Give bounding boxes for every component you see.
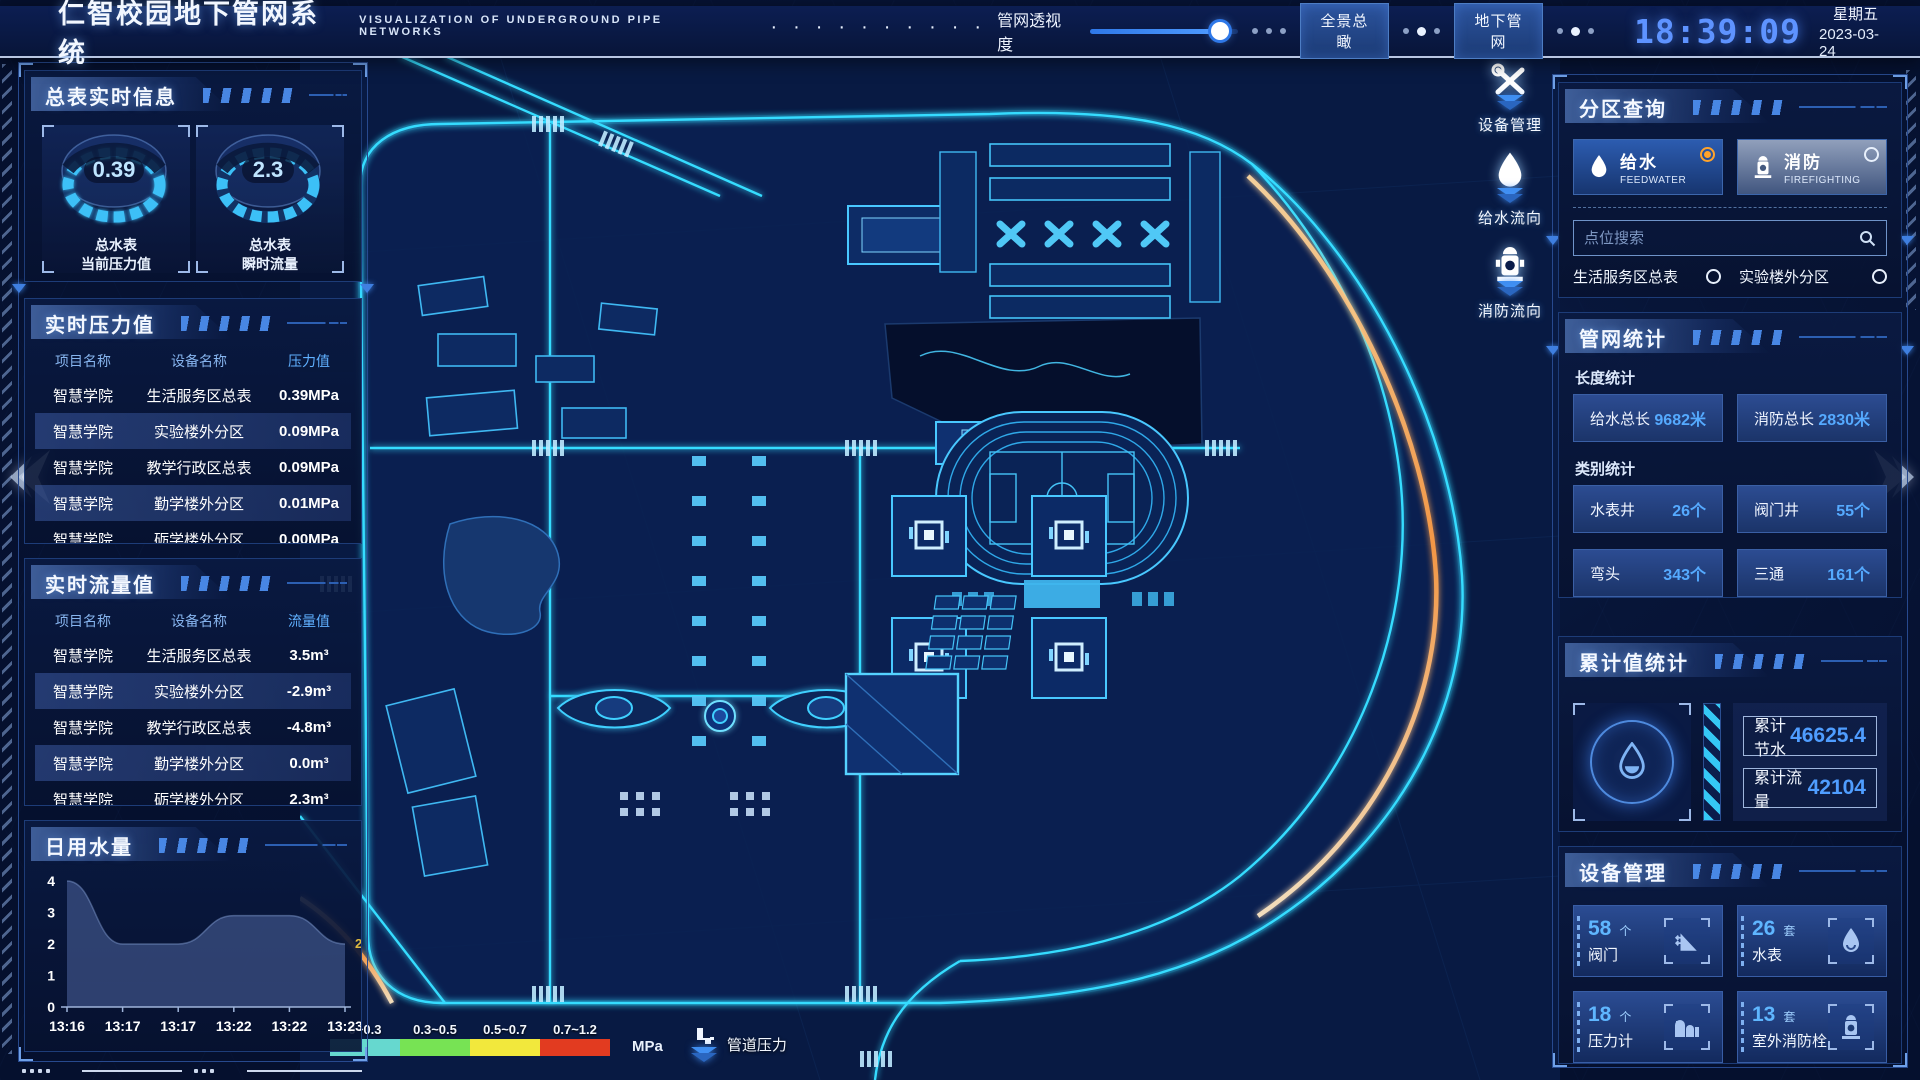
tool-fire-flow[interactable]: 消防流向 [1478,244,1542,321]
top-bar: 仁智校园地下管网系统 VISUALIZATION OF UNDERGROUND … [0,6,1920,58]
hazard-stripe-divider [1703,703,1721,821]
panel-daily-water: 日用水量 0123413:1613:1713:1713:2213:2213:23… [24,820,362,1052]
radio-selected-icon[interactable] [1700,147,1715,162]
search-icon[interactable] [1859,230,1876,247]
footer-decoration [22,1068,362,1074]
table-row[interactable]: 智慧学院砺学楼外分区0.00MPa [35,521,351,544]
pipe-opacity-label: 管网透视度 [997,7,1076,55]
gauge-value: 2.3 [253,157,284,182]
svg-text:13:16: 13:16 [49,1018,85,1034]
list-item[interactable]: 生活服务区总表 [1573,260,1721,293]
tool-water-flow[interactable]: 给水流向 [1478,151,1542,228]
tab-firefighting[interactable]: 消防FIREFIGHTING [1737,139,1887,195]
stat-feedwater-length: 给水总长9682米 [1573,394,1723,442]
radio-icon[interactable] [1872,269,1887,284]
gauge-value: 0.39 [93,157,136,182]
tool-device-management[interactable]: 设备管理 [1478,62,1542,135]
slashes-decoration [203,88,299,103]
panel-partition-query: 分区查询 给水FEEDWATER 消防FIREFIGHTING [1558,82,1902,298]
legend-range: 0.7~1.2 [540,1022,610,1056]
pipe-pressure-icon[interactable] [691,1026,717,1062]
slashes-decoration [1693,100,1789,115]
panel-realtime-info: 总表实时信息 0.39 总水表当前压力值 [24,70,362,282]
campus-map [300,56,1560,1080]
slashes-decoration [1693,864,1789,879]
clock-date: 2023-03-24 [1819,26,1892,60]
pipe-opacity-slider[interactable] [1090,23,1238,39]
slashes-decoration [181,316,277,331]
water-drop-icon [1615,742,1649,782]
water-saving-badge [1573,703,1691,821]
stat-meter-wells: 水表井26个 [1573,485,1723,533]
dashed-divider [1573,207,1887,208]
svg-text:2: 2 [355,936,361,951]
radio-icon[interactable] [1864,147,1879,162]
radio-icon[interactable] [1706,269,1721,284]
stat-elbows: 弯头343个 [1573,549,1723,597]
flow-table: 项目名称设备名称流量值 智慧学院生活服务区总表3.5m³ 智慧学院实验楼外分区-… [35,605,351,806]
water-drop-icon [1493,151,1527,191]
pressure-legend: 0~0.3 0.3~0.5 0.5~0.7 0.7~1.2 MPa 管道压力 [330,1022,787,1056]
panel-cumulative-stats: 累计值统计 累计节水46625.4 累计流量42104 [1558,636,1902,832]
pipe-pressure-label: 管道压力 [727,1034,787,1055]
svg-text:13:17: 13:17 [105,1018,141,1034]
campus-map-viewport[interactable] [300,56,1560,1080]
water-meter-icon [1839,927,1863,955]
device-card-hydrants[interactable]: 13套 室外消防栓 [1737,991,1887,1063]
svg-text:3: 3 [47,905,55,921]
panel-title: 累计值统计 [1579,647,1689,676]
app-title-en: VISUALIZATION OF UNDERGROUND PIPE NETWOR… [359,14,748,38]
map-tools: 设备管理 给水流向 消防流向 [1462,62,1558,331]
gym-building [846,674,958,774]
device-card-meters[interactable]: 26套 水表 [1737,905,1887,977]
clock-time: 18:39:09 [1634,12,1801,51]
table-row[interactable]: 智慧学院实验楼外分区-2.9m³ [35,673,351,709]
table-header: 项目名称设备名称压力值 [35,345,351,377]
slider-thumb[interactable] [1211,22,1229,40]
table-row[interactable]: 智慧学院砺学楼外分区2.3m³ [35,781,351,806]
hydrant-icon [1839,1013,1863,1041]
svg-text:4: 4 [47,873,55,889]
panel-realtime-flow: 实时流量值 项目名称设备名称流量值 智慧学院生活服务区总表3.5m³ 智慧学院实… [24,558,362,806]
tools-icon [1490,62,1530,98]
dots-decoration [1557,27,1594,36]
overview-button[interactable]: 全景总瞰 [1300,3,1389,59]
svg-text:0: 0 [47,999,55,1015]
panel-title: 分区查询 [1579,93,1667,122]
legend-range: 0.5~0.7 [470,1022,540,1056]
panel-title: 实时流量值 [45,569,155,598]
search-input[interactable] [1584,230,1859,247]
app-title: 仁智校园地下管网系统 VISUALIZATION OF UNDERGROUND … [58,0,748,70]
table-row[interactable]: 智慧学院教学行政区总表0.09MPa [35,449,351,485]
panel-title: 实时压力值 [45,309,155,338]
stat-tees: 三通161个 [1737,549,1887,597]
device-card-pressure-gauges[interactable]: 18个 压力计 [1573,991,1723,1063]
daily-water-chart: 0123413:1613:1713:1713:2213:2213:232 [27,867,361,1049]
hydrant-icon [1752,154,1774,180]
panel-realtime-pressure: 实时压力值 项目名称设备名称压力值 智慧学院生活服务区总表0.39MPa 智慧学… [24,298,362,544]
partition-point-list: 生活服务区总表 实验楼外分区 教学行政区总表 勤学楼外分区 砺学楼外分区 宿舍区… [1573,260,1887,298]
slashes-decoration [1693,330,1789,345]
table-header: 项目名称设备名称流量值 [35,605,351,637]
table-row[interactable]: 智慧学院勤学楼外分区0.01MPa [35,485,351,521]
svg-text:13:17: 13:17 [160,1018,196,1034]
svg-text:13:22: 13:22 [271,1018,307,1034]
legend-range: 0.3~0.5 [400,1022,470,1056]
point-search[interactable] [1573,220,1887,256]
list-item[interactable]: 勤学楼外分区 [1739,293,1887,298]
gauge-pressure: 0.39 总水表当前压力值 [42,125,190,273]
slashes-decoration [181,576,277,591]
list-item[interactable]: 实验楼外分区 [1739,260,1887,293]
svg-text:1: 1 [47,968,55,984]
clock-weekday: 星期五 [1833,3,1878,24]
total-flow: 累计流量42104 [1743,768,1877,808]
dots-decoration [1403,27,1440,36]
water-drop-icon [1588,154,1610,180]
gauge-dial: 2.3 [196,127,340,231]
table-row[interactable]: 智慧学院生活服务区总表3.5m³ [35,637,351,673]
gauge-label: 总水表 [42,236,190,255]
panel-device-management: 设备管理 58个 阀门 26套 水表 [1558,846,1902,1064]
table-row[interactable]: 智慧学院实验楼外分区0.09MPa [35,413,351,449]
left-sidebar: 总表实时信息 0.39 总水表当前压力值 [18,62,368,1062]
category-stats-title: 类别统计 [1575,458,1885,479]
tab-feedwater[interactable]: 给水FEEDWATER [1573,139,1723,195]
gauge-flow: 2.3 总水表瞬时流量 [196,125,344,273]
pressure-table: 项目名称设备名称压力值 智慧学院生活服务区总表0.39MPa 智慧学院实验楼外分… [35,345,351,544]
list-item[interactable]: 教学行政区总表 [1573,293,1721,298]
stat-valve-wells: 阀门井55个 [1737,485,1887,533]
svg-text:2: 2 [47,936,55,952]
left-edge-decoration [2,64,12,1054]
valve-icon [1674,928,1700,954]
table-row[interactable]: 智慧学院生活服务区总表0.39MPa [35,377,351,413]
total-water-saved: 累计节水46625.4 [1743,716,1877,756]
svg-text:13:22: 13:22 [216,1018,252,1034]
dots-decoration [1252,28,1286,34]
slashes-decoration [159,838,255,853]
panel-title: 总表实时信息 [45,81,177,110]
table-row[interactable]: 智慧学院教学行政区总表-4.8m³ [35,709,351,745]
device-card-valves[interactable]: 58个 阀门 [1573,905,1723,977]
panel-network-stats: 管网统计 长度统计 给水总长9682米 消防总长2830米 类别统计 水表井26… [1558,312,1902,598]
slashes-decoration [1715,654,1811,669]
underground-pipes-button[interactable]: 地下管网 [1454,3,1543,59]
legend-unit: MPa [632,1038,663,1055]
length-stats-title: 长度统计 [1575,367,1885,388]
table-row[interactable]: 智慧学院勤学楼外分区0.0m³ [35,745,351,781]
right-sidebar: 分区查询 给水FEEDWATER 消防FIREFIGHTING [1552,74,1908,1068]
panel-title: 设备管理 [1579,857,1667,886]
hydrant-icon [1493,244,1527,284]
stat-fire-length: 消防总长2830米 [1737,394,1887,442]
pressure-gauge-icon [1673,1015,1701,1039]
panel-title: 管网统计 [1579,323,1667,352]
app-title-cn: 仁智校园地下管网系统 [58,0,345,70]
header-dots-decoration: ·········· [770,17,997,37]
gauge-dial: 0.39 [42,127,186,231]
clock: 18:39:09 星期五 2023-03-24 [1634,3,1892,60]
gauge-label: 总水表 [196,236,344,255]
panel-title: 日用水量 [45,831,133,860]
svg-text:13:23: 13:23 [327,1018,361,1034]
